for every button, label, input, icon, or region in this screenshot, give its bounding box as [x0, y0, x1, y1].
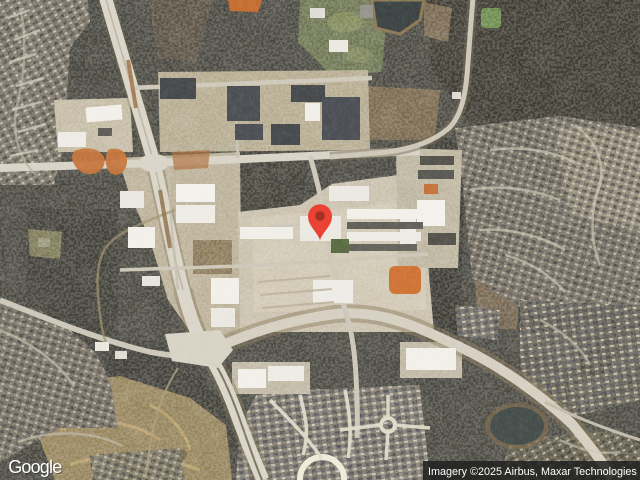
svg-text:Imagery ©2025 Airbus, Maxar Te: Imagery ©2025 Airbus, Maxar Technologies [428, 466, 637, 478]
svg-text:Google: Google [8, 457, 62, 477]
